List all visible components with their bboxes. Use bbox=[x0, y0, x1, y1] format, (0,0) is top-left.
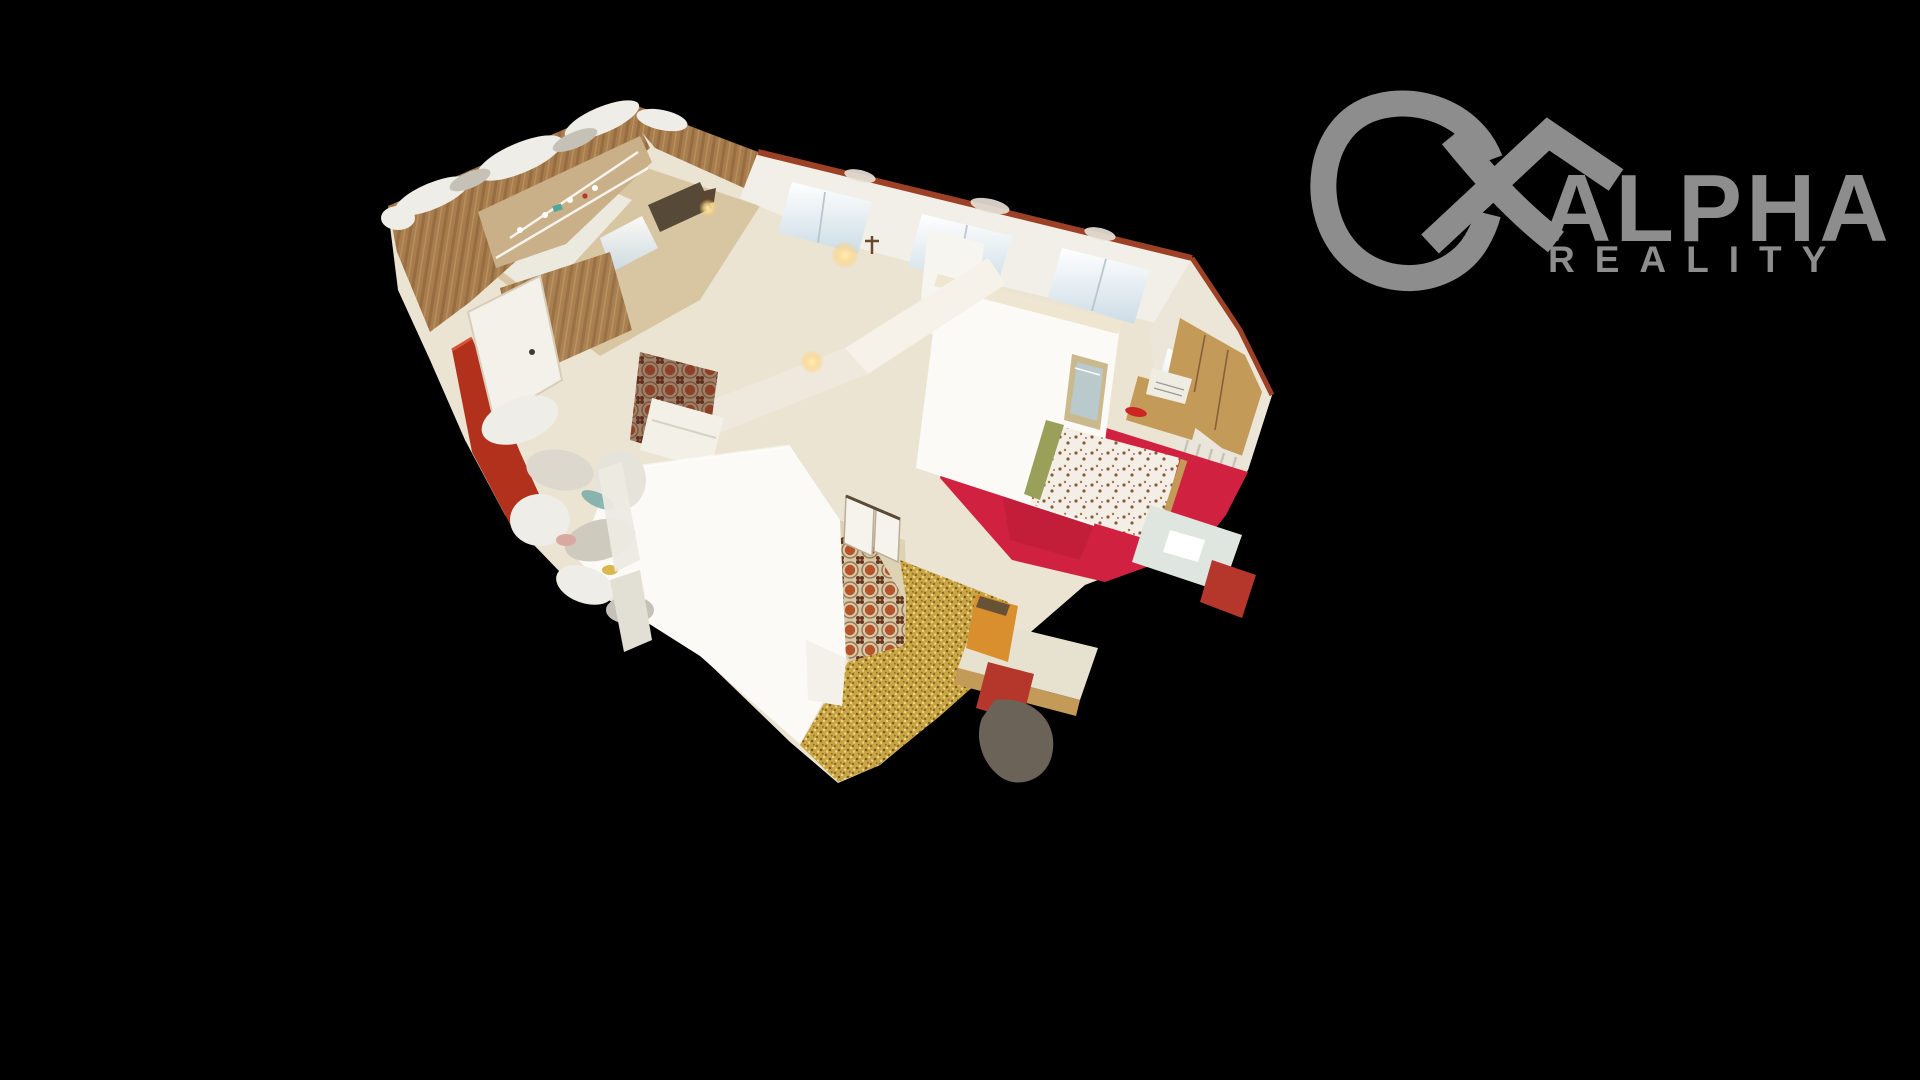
brand-logo: ALPHA REALITY bbox=[1323, 103, 1892, 280]
red-room-desk bbox=[1132, 505, 1256, 618]
door-handle bbox=[529, 349, 535, 355]
apartment-model bbox=[381, 92, 1272, 783]
brand-tagline: REALITY bbox=[1548, 239, 1846, 280]
dollhouse-scene: ALPHA REALITY bbox=[0, 0, 1920, 1080]
kitchen-ceiling-lamp bbox=[699, 188, 717, 217]
wall-lamp-glow-2 bbox=[800, 350, 824, 374]
wall-lamp-glow-1 bbox=[831, 241, 859, 269]
dark-scan-blob bbox=[979, 699, 1053, 782]
alpha-loop bbox=[1323, 103, 1490, 278]
